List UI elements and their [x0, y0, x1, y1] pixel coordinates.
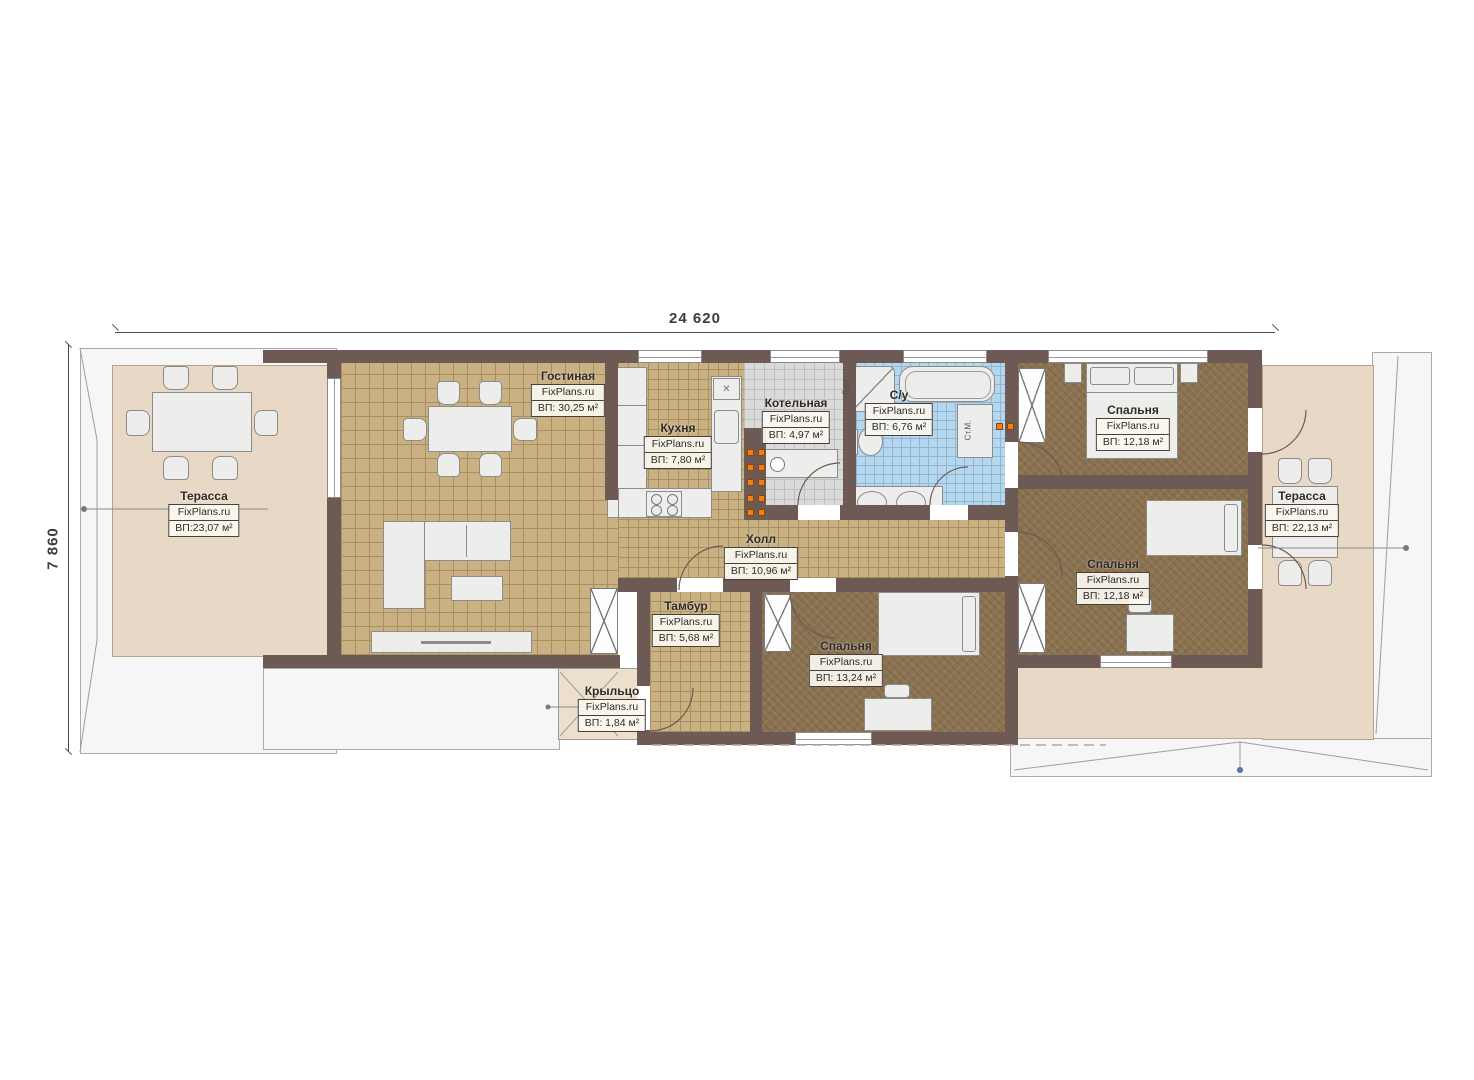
roof-right-band: [1372, 352, 1432, 774]
pillow: [1090, 367, 1130, 385]
area-text: ВП: 5,68 м²: [653, 630, 719, 646]
dimension-line-left: [68, 345, 69, 752]
chair: [513, 418, 537, 441]
pillow: [962, 596, 976, 652]
brand-text: FixPlans.ru: [169, 505, 238, 520]
flue-marker: [747, 479, 765, 486]
window: [638, 350, 702, 363]
floor-plan-canvas: ✕ Ст.М. Душ: [0, 0, 1474, 1080]
nightstand: [1180, 363, 1198, 383]
room-label-bedroom-mid: Спальня FixPlans.ruВП: 12,18 м²: [1076, 557, 1150, 605]
wall-living-kitchen: [605, 363, 618, 500]
nightstand: [1064, 363, 1082, 383]
room-label-terrace-right: Терасса FixPlans.ruВП: 22,13 м²: [1265, 489, 1339, 537]
room-label-boiler: Котельная FixPlans.ruВП: 4,97 м²: [762, 396, 830, 444]
wardrobe: [764, 594, 792, 652]
burner: [651, 494, 662, 505]
boiler: [770, 457, 785, 472]
chair: [479, 453, 502, 477]
sofa-chaise: [383, 521, 425, 609]
wall-right: [1248, 350, 1262, 668]
flue-marker: [747, 449, 765, 456]
brand-text: FixPlans.ru: [1097, 419, 1169, 434]
desk: [1126, 614, 1174, 652]
sofa-cushion-line: [466, 525, 467, 557]
burner: [667, 494, 678, 505]
area-text: ВП: 22,13 м²: [1266, 520, 1338, 536]
brand-text: FixPlans.ru: [725, 548, 797, 563]
chair: [437, 381, 460, 405]
area-text: ВП: 1,84 м²: [579, 715, 645, 731]
area-text: ВП: 10,96 м²: [725, 563, 797, 579]
window: [1100, 655, 1172, 668]
dimension-left-value: 7 860: [45, 514, 62, 584]
door-opening: [677, 578, 723, 592]
wardrobe: [1018, 583, 1046, 653]
door-opening: [1248, 545, 1262, 589]
chair: [479, 381, 502, 405]
wardrobe: [590, 588, 618, 654]
brand-text: FixPlans.ru: [866, 404, 932, 419]
brand-text: FixPlans.ru: [645, 437, 711, 452]
chair: [126, 410, 150, 436]
door-opening: [1248, 408, 1262, 452]
flue-marker: [996, 423, 1014, 430]
dimension-tick: [112, 324, 119, 331]
terrace-right-south-floor: [1018, 668, 1372, 738]
door-opening: [798, 505, 840, 520]
burner: [667, 505, 678, 516]
area-text: ВП:23,07 м²: [169, 520, 238, 536]
chair: [212, 456, 238, 480]
chair: [163, 456, 189, 480]
brand-text: FixPlans.ru: [579, 700, 645, 715]
dimension-tick: [1272, 324, 1279, 331]
wall-bedroom-divider: [1018, 475, 1248, 489]
wall-living-bottom: [263, 655, 620, 668]
area-text: ВП: 12,18 м²: [1097, 434, 1169, 450]
chair: [1308, 458, 1332, 484]
area-text: ВП: 13,24 м²: [810, 670, 882, 686]
brand-text: FixPlans.ru: [653, 615, 719, 630]
brand-text: FixPlans.ru: [1077, 573, 1149, 588]
door-opening: [1005, 532, 1018, 576]
flue-marker: [747, 495, 765, 502]
door-opening: [1005, 442, 1018, 488]
brand-text: FixPlans.ru: [810, 655, 882, 670]
chair: [403, 418, 427, 441]
chair: [884, 684, 910, 698]
wall-vestibule-bedroom: [750, 592, 762, 732]
brand-text: FixPlans.ru: [532, 385, 604, 400]
flue-marker: [747, 464, 765, 471]
window: [1048, 350, 1208, 363]
window: [770, 350, 840, 363]
room-label-bedroom-south: Спальня FixPlans.ruВП: 13,24 м²: [809, 639, 883, 687]
brand-text: FixPlans.ru: [1266, 505, 1338, 520]
roof-bottom-left: [263, 668, 560, 750]
window: [795, 732, 872, 745]
desk: [864, 698, 932, 731]
blanket-line: [1087, 392, 1177, 393]
room-label-kitchen: Кухня FixPlans.ruВП: 7,80 м²: [644, 421, 712, 469]
room-label-bedroom-top: Спальня FixPlans.ruВП: 12,18 м²: [1096, 403, 1170, 451]
area-text: ВП: 4,97 м²: [763, 427, 829, 443]
area-text: ВП: 6,76 м²: [866, 419, 932, 435]
door-opening: [930, 505, 968, 520]
chair: [163, 366, 189, 390]
door-opening: [790, 578, 836, 592]
coffee-table: [451, 576, 503, 601]
dimension-top-value: 24 620: [669, 310, 721, 327]
vent-box-icon: ✕: [713, 378, 740, 400]
shower-label: Душ: [842, 379, 851, 395]
room-label-bathroom: С/у FixPlans.ruВП: 6,76 м²: [865, 388, 933, 436]
room-label-hall: Холл FixPlans.ruВП: 10,96 м²: [724, 532, 798, 580]
kitchen-sink: [714, 410, 739, 444]
terrace-glass-door: [327, 378, 341, 498]
window: [903, 350, 987, 363]
flue-marker: [747, 509, 765, 516]
terrace-left-table: [152, 392, 252, 452]
chair: [1278, 560, 1302, 586]
dimension-line-top: [115, 332, 1275, 333]
area-text: ВП: 7,80 м²: [645, 452, 711, 468]
room-label-porch: Крыльцо FixPlans.ruВП: 1,84 м²: [578, 684, 646, 732]
chair: [212, 366, 238, 390]
room-label-living: Гостиная FixPlans.ruВП: 30,25 м²: [531, 369, 605, 417]
pillow: [1134, 367, 1174, 385]
hall-floor: [618, 520, 1005, 578]
pillow: [1224, 504, 1238, 552]
chair: [437, 453, 460, 477]
room-label-vestibule: Тамбур FixPlans.ruВП: 5,68 м²: [652, 599, 720, 647]
area-text: ВП: 12,18 м²: [1077, 588, 1149, 604]
brand-text: FixPlans.ru: [763, 412, 829, 427]
chair: [1278, 458, 1302, 484]
burner: [651, 505, 662, 516]
wardrobe: [1018, 368, 1046, 443]
washing-machine-label: Ст.М.: [963, 421, 972, 441]
room-label-terrace-left: Терасса FixPlans.ruВП:23,07 м²: [168, 489, 239, 537]
roof-bottom-right: [1010, 738, 1432, 777]
area-text: ВП: 30,25 м²: [532, 400, 604, 416]
sofa-seat: [424, 521, 511, 561]
tv: [421, 641, 491, 644]
chair: [254, 410, 278, 436]
dining-table: [428, 406, 512, 452]
chair: [1308, 560, 1332, 586]
